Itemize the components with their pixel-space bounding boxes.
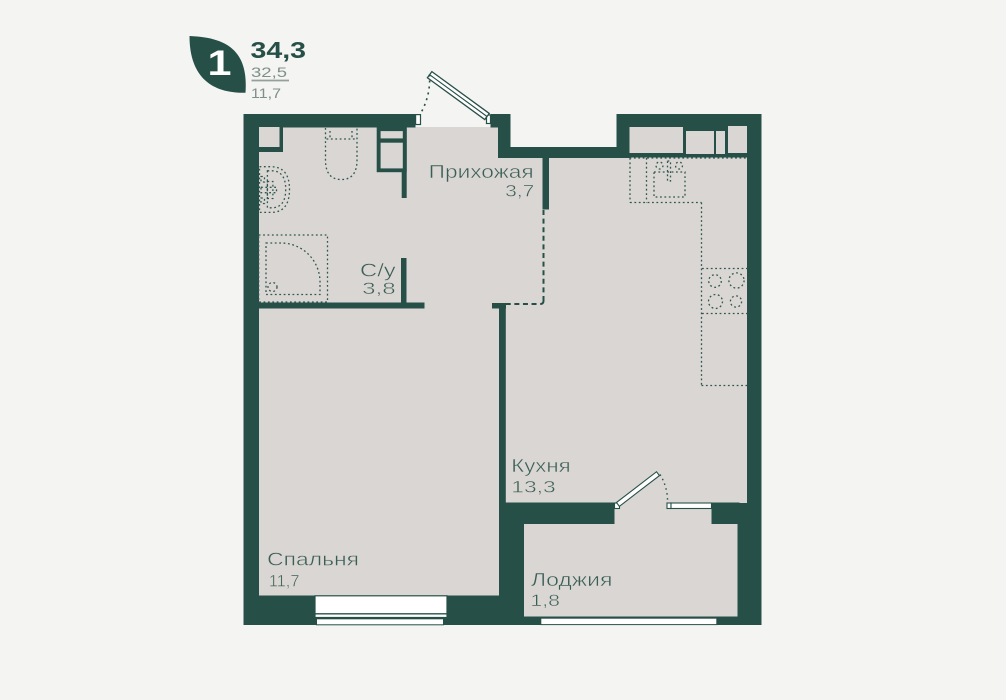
svg-text:1,8: 1,8 bbox=[530, 592, 560, 610]
svg-text:3,7: 3,7 bbox=[505, 183, 534, 201]
svg-text:1: 1 bbox=[208, 44, 232, 83]
svg-text:11,7: 11,7 bbox=[269, 573, 300, 591]
svg-text:34,3: 34,3 bbox=[251, 37, 307, 63]
svg-text:32,5: 32,5 bbox=[251, 65, 287, 80]
svg-text:Прихожая: Прихожая bbox=[429, 161, 534, 182]
svg-text:Кухня: Кухня bbox=[511, 455, 570, 476]
svg-text:Лоджия: Лоджия bbox=[531, 569, 612, 590]
svg-text:11,7: 11,7 bbox=[251, 85, 281, 101]
svg-text:С/у: С/у bbox=[360, 259, 397, 280]
svg-text:Спальня: Спальня bbox=[267, 549, 359, 570]
svg-text:3,8: 3,8 bbox=[362, 280, 396, 298]
svg-text:13,3: 13,3 bbox=[511, 479, 555, 497]
